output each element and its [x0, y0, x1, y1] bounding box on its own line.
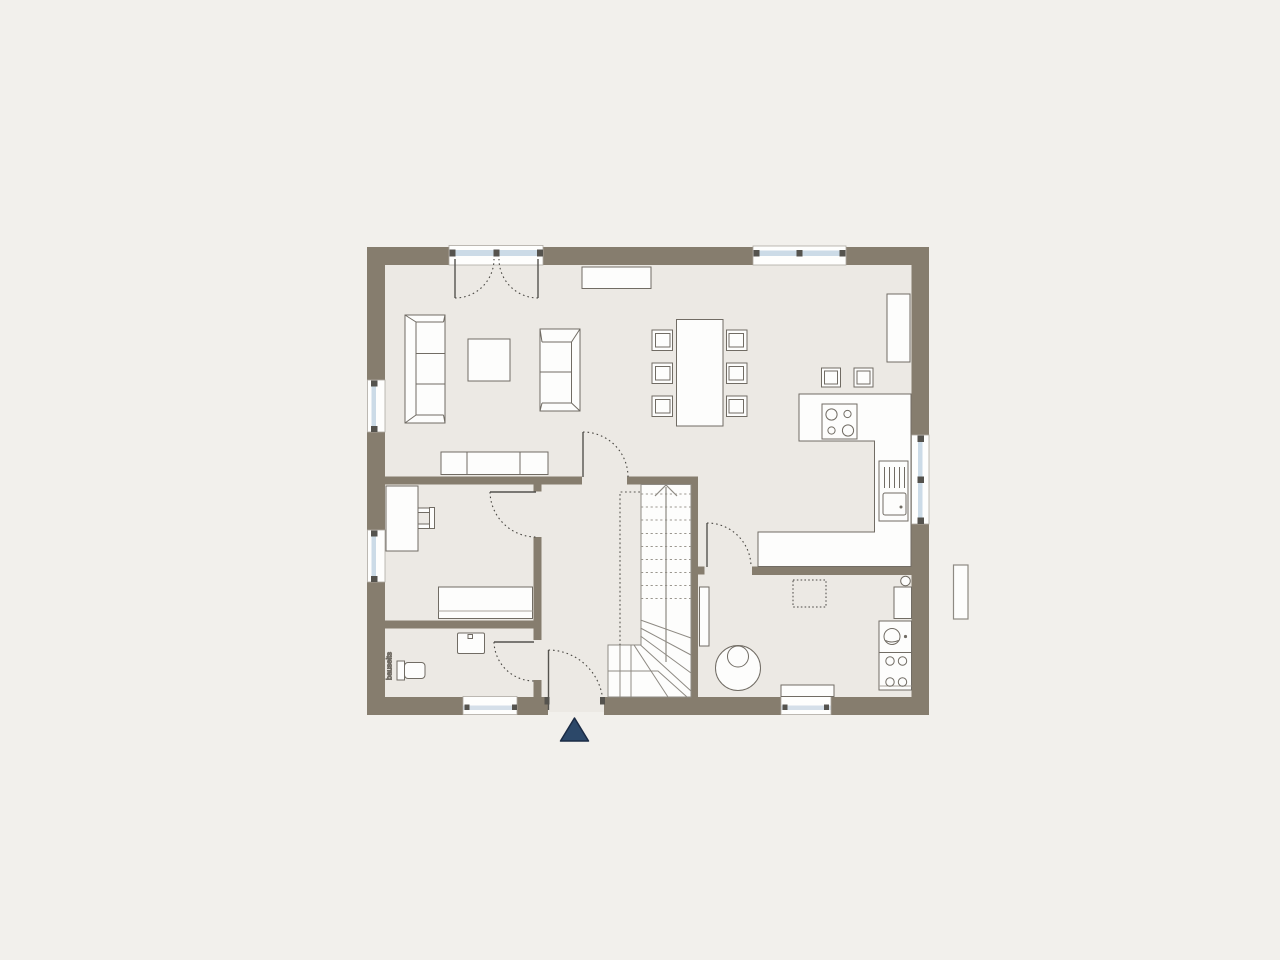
svg-text:bauseits: bauseits — [385, 652, 394, 680]
